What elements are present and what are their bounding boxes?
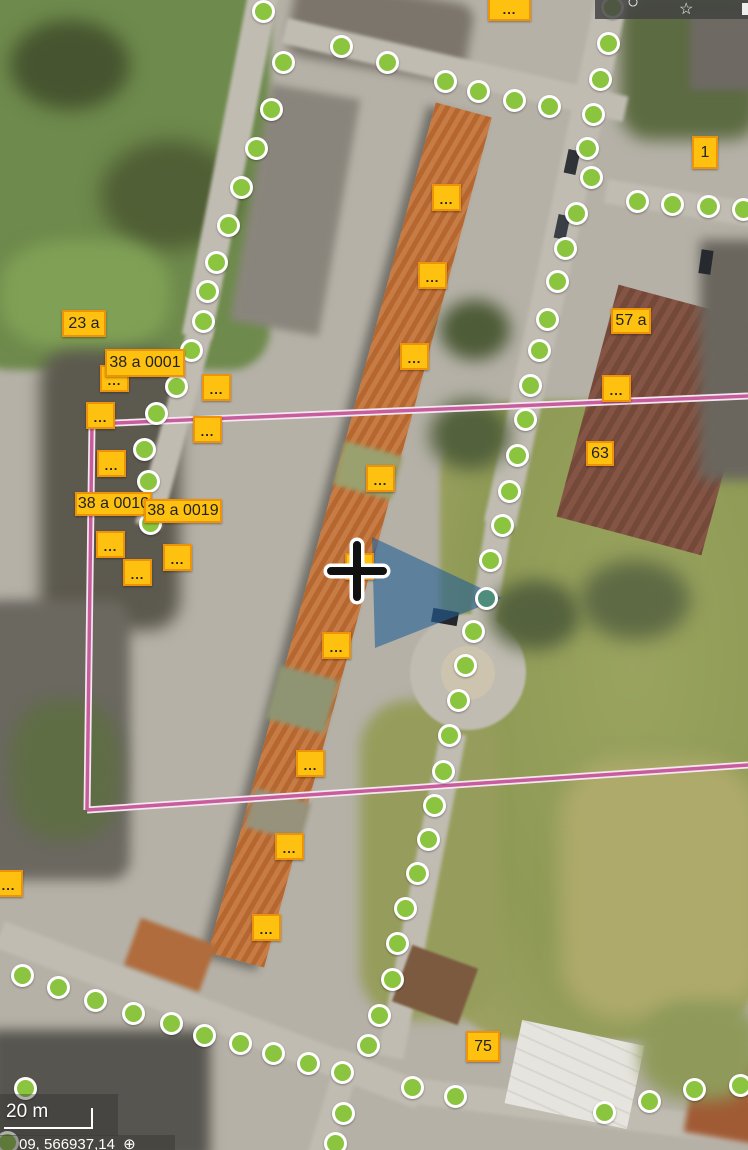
address-label[interactable]: 1 — [692, 136, 718, 169]
address-label[interactable]: 75 — [466, 1031, 500, 1062]
collapsed-label[interactable]: ... — [432, 184, 461, 211]
partial-icon[interactable] — [742, 3, 748, 15]
scale-tick — [91, 1108, 93, 1129]
collapsed-label[interactable]: ... — [252, 914, 281, 941]
collapsed-label[interactable]: ... — [0, 870, 23, 897]
labels-layer: ........................................… — [0, 0, 748, 1150]
scale-label: 20 m — [6, 1101, 48, 1123]
collapsed-label[interactable]: ... — [322, 632, 351, 659]
status-bar: 09, 566937,14 ⊕ — [0, 1135, 175, 1150]
address-label[interactable]: 23 a — [62, 310, 106, 337]
collapsed-label[interactable]: ... — [163, 544, 192, 571]
collapsed-label[interactable]: ... — [602, 375, 631, 402]
collapsed-label[interactable]: ... — [400, 343, 429, 370]
collapsed-label[interactable]: ... — [345, 553, 374, 580]
scale-bar: 20 m — [0, 1094, 118, 1136]
address-label[interactable]: 57 a — [611, 308, 651, 334]
collapsed-label[interactable]: ... — [296, 750, 325, 777]
bookmark-star-icon[interactable]: ☆ — [679, 0, 693, 19]
address-label[interactable]: 38 a 0001 — [105, 349, 185, 377]
collapsed-label[interactable]: ... — [366, 465, 395, 492]
collapsed-label[interactable]: ... — [123, 559, 152, 586]
map-viewport[interactable]: ........................................… — [0, 0, 748, 1150]
collapsed-label[interactable]: ... — [488, 0, 531, 21]
coordinate-readout: 09, 566937,14 — [19, 1136, 115, 1150]
collapsed-label[interactable]: ... — [97, 450, 126, 477]
collapsed-label[interactable]: ... — [86, 402, 115, 429]
address-label[interactable]: 63 — [586, 441, 614, 466]
collapsed-label[interactable]: ... — [275, 833, 304, 860]
collapsed-label[interactable]: ... — [202, 374, 231, 401]
collapsed-label[interactable]: ... — [418, 262, 447, 289]
address-label[interactable]: 38 a 0010 — [75, 492, 152, 516]
address-label[interactable]: 38 a 0019 — [144, 499, 222, 523]
scale-line — [4, 1127, 93, 1129]
collapsed-label[interactable]: ... — [193, 416, 222, 443]
floating-toolbar: ○ ☆ — [595, 0, 748, 19]
collapsed-label[interactable]: ... — [96, 531, 125, 558]
circled-plus-icon[interactable]: ⊕ — [123, 1136, 136, 1150]
circle-icon[interactable]: ○ — [627, 0, 639, 14]
